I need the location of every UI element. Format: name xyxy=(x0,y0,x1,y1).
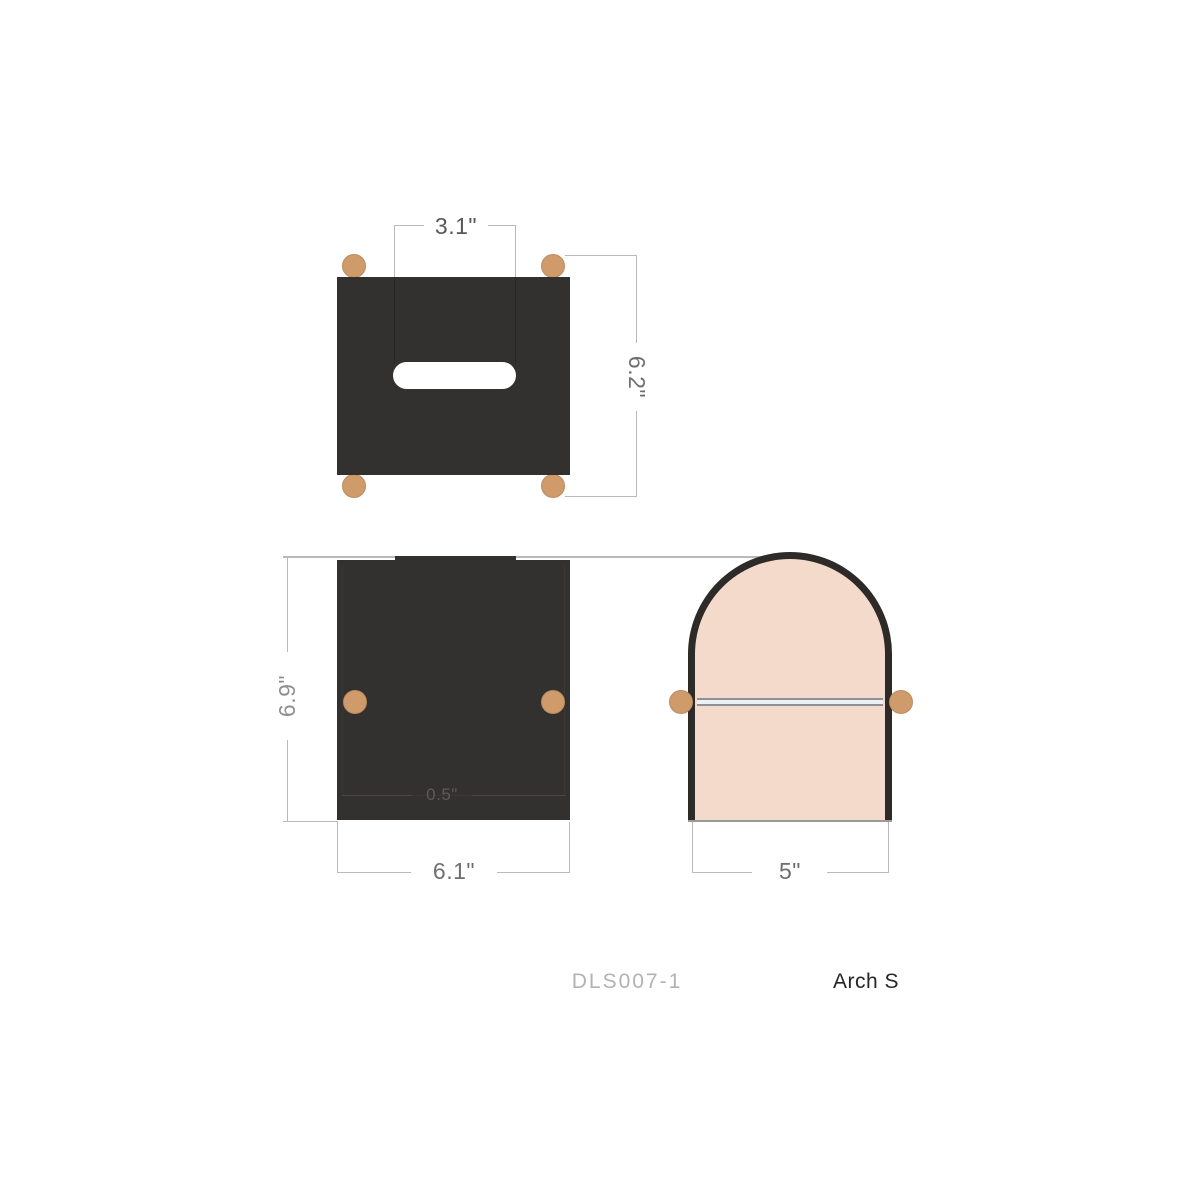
dim-label-foot-clearance: 0.5" xyxy=(407,786,477,804)
dim-line xyxy=(287,740,288,822)
knob-front-right xyxy=(541,690,565,714)
dim-label-side-width: 5" xyxy=(748,859,832,883)
dimension-drawing: 3.1" 6.2" 0.5" 6.9" xyxy=(0,0,1200,1200)
foot-circle-bottom-left xyxy=(342,474,366,498)
dim-line xyxy=(827,872,889,873)
dim-label-top-depth: 6.2" xyxy=(625,335,649,419)
knob-side-left xyxy=(669,690,693,714)
dim-label-slot-width: 3.1" xyxy=(414,214,498,238)
lid-seam-line xyxy=(697,698,883,706)
dim-line xyxy=(337,872,411,873)
foot-circle-bottom-right xyxy=(541,474,565,498)
arch-profile xyxy=(688,552,892,822)
foot-circle-top-right xyxy=(541,254,565,278)
extension-line xyxy=(283,556,780,558)
dim-line xyxy=(692,872,752,873)
extension-line xyxy=(565,496,637,497)
knob-side-right xyxy=(889,690,913,714)
dim-line xyxy=(472,795,566,796)
dim-line xyxy=(636,255,637,343)
dim-label-front-height: 6.9" xyxy=(275,654,299,738)
dim-line xyxy=(636,411,637,497)
extension-line xyxy=(394,225,395,277)
extension-line xyxy=(394,277,395,364)
extension-line xyxy=(337,822,338,873)
extension-line xyxy=(569,822,570,873)
inner-cavity-outline xyxy=(342,566,565,796)
extension-line xyxy=(515,225,516,277)
product-sku: DLS007-1 xyxy=(557,970,697,994)
extension-line xyxy=(692,822,693,873)
foot-circle-top-left xyxy=(342,254,366,278)
dim-line xyxy=(497,872,570,873)
dim-label-front-width: 6.1" xyxy=(412,859,496,883)
extension-line xyxy=(888,822,889,873)
extension-line xyxy=(565,255,637,256)
extension-line xyxy=(515,277,516,364)
extension-line xyxy=(283,821,338,822)
product-name: Arch S xyxy=(796,970,936,994)
handle-slot-cutout xyxy=(393,362,516,389)
knob-front-left xyxy=(343,690,367,714)
dim-line xyxy=(342,795,412,796)
arch-bottom-edge xyxy=(688,820,892,822)
dim-line xyxy=(287,556,288,652)
